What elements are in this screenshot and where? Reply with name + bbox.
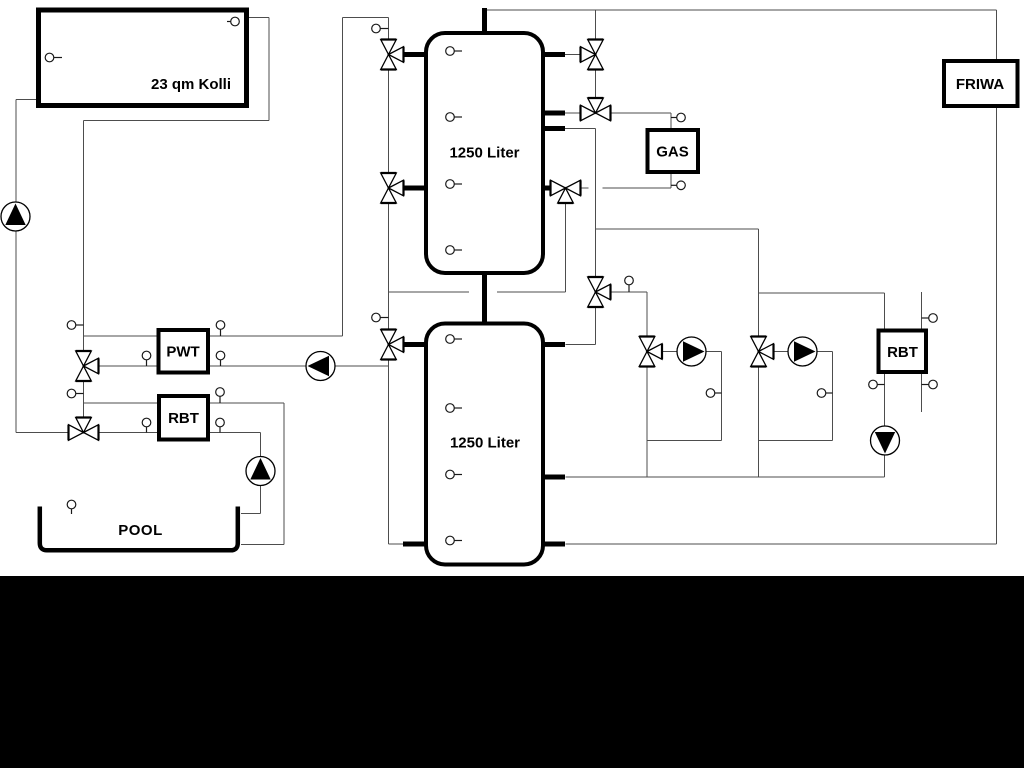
svg-text:23 qm Kolli: 23 qm Kolli bbox=[151, 76, 231, 93]
svg-text:POOL: POOL bbox=[118, 522, 163, 539]
svg-text:PWT: PWT bbox=[166, 344, 199, 361]
svg-text:1250 Liter: 1250 Liter bbox=[450, 435, 520, 452]
svg-text:FRIWA: FRIWA bbox=[956, 76, 1004, 93]
svg-text:RBT: RBT bbox=[887, 344, 918, 361]
svg-text:1250 Liter: 1250 Liter bbox=[449, 145, 519, 162]
svg-text:GAS: GAS bbox=[656, 144, 689, 161]
svg-text:RBT: RBT bbox=[168, 410, 199, 427]
